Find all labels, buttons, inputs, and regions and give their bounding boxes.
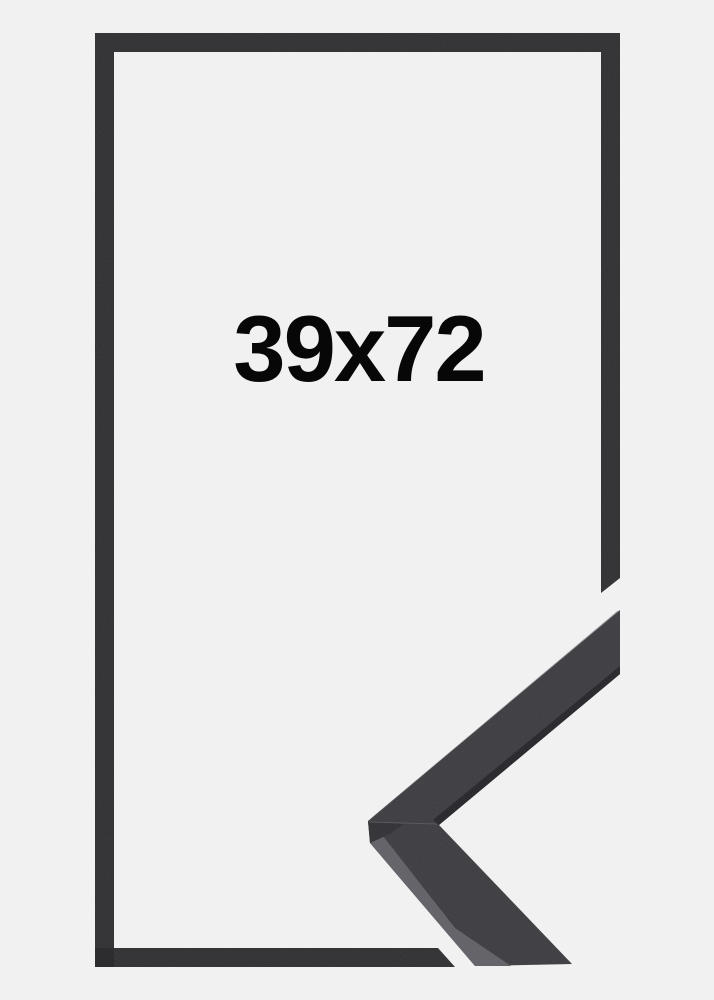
frame-product-image: 39x72 — [0, 0, 714, 1000]
product-photo: 39x72 — [0, 0, 714, 1000]
size-label: 39x72 — [233, 296, 484, 401]
